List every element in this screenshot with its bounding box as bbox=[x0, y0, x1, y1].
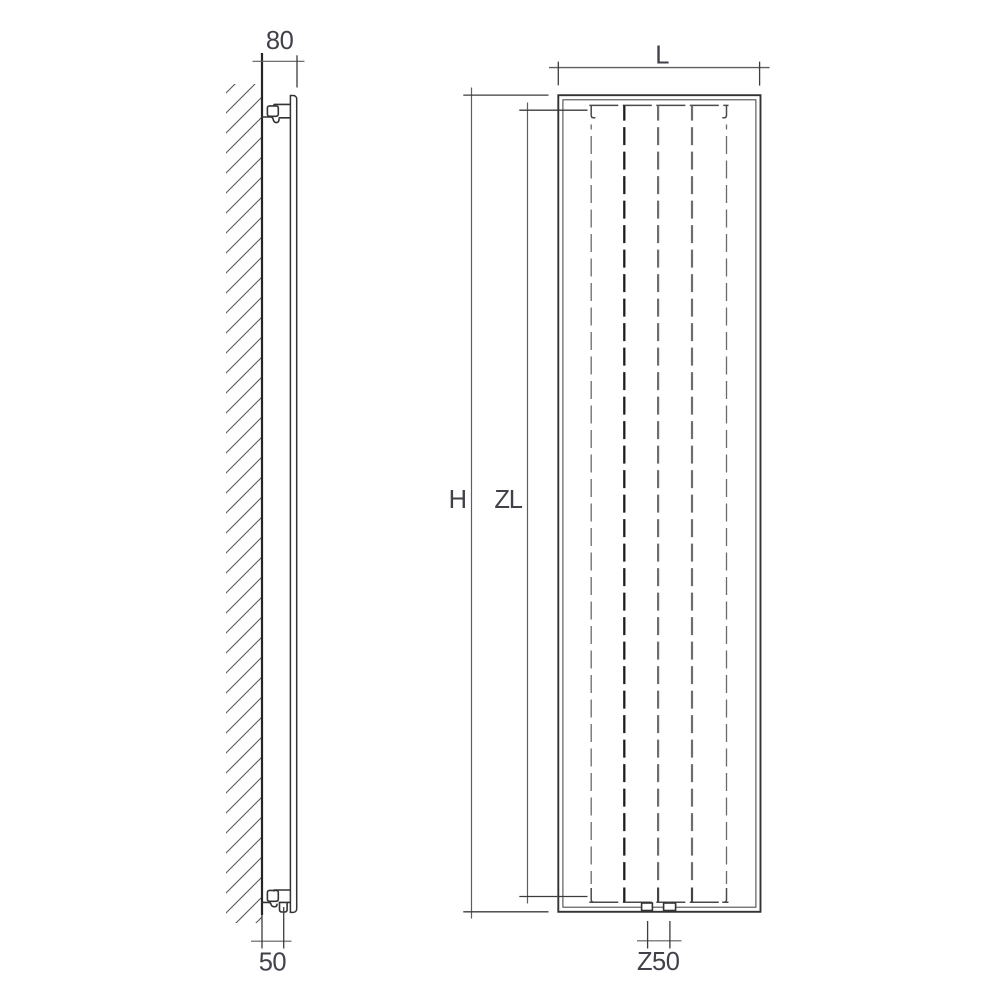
svg-text:Z50: Z50 bbox=[637, 948, 680, 976]
svg-text:H: H bbox=[449, 486, 467, 514]
svg-text:80: 80 bbox=[266, 27, 294, 55]
svg-text:50: 50 bbox=[259, 948, 287, 976]
svg-text:L: L bbox=[655, 41, 669, 69]
svg-text:ZL: ZL bbox=[494, 486, 522, 514]
